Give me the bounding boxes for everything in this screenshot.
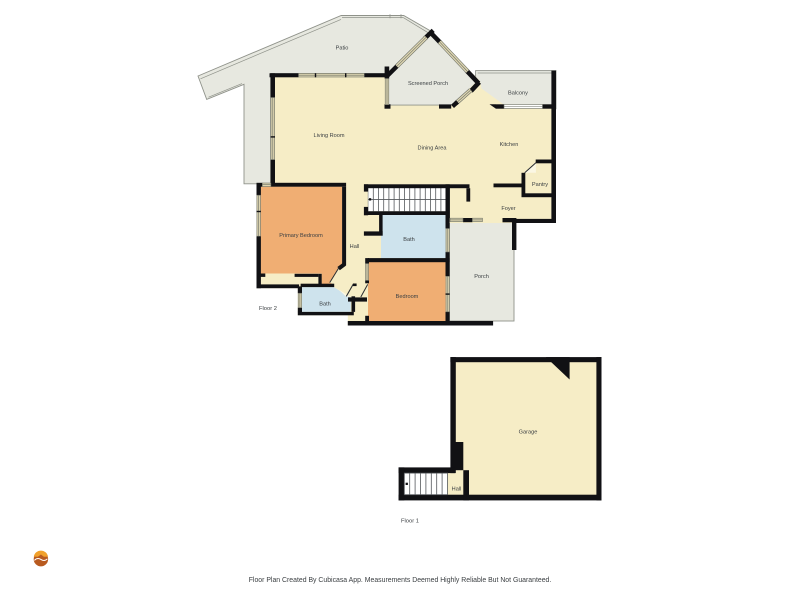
svg-text:Floor Plan Created By Cubicasa: Floor Plan Created By Cubicasa App. Meas… — [249, 577, 552, 584]
svg-text:Porch: Porch — [474, 274, 489, 280]
svg-text:Dining Area: Dining Area — [418, 146, 448, 152]
svg-text:Kitchen: Kitchen — [500, 142, 519, 148]
svg-text:Floor 2: Floor 2 — [259, 306, 277, 312]
svg-text:Foyer: Foyer — [501, 206, 515, 212]
svg-text:Primary Bedroom: Primary Bedroom — [279, 233, 323, 239]
svg-text:Bath: Bath — [403, 237, 415, 243]
svg-text:Bedroom: Bedroom — [396, 294, 419, 300]
svg-text:Floor 1: Floor 1 — [401, 519, 419, 525]
svg-text:Hall: Hall — [452, 486, 462, 492]
svg-text:Balcony: Balcony — [508, 91, 528, 97]
svg-text:Patio: Patio — [336, 45, 349, 51]
svg-text:Bath: Bath — [319, 302, 331, 308]
svg-text:Hall: Hall — [350, 244, 360, 250]
svg-text:Living Room: Living Room — [313, 133, 344, 139]
svg-text:Garage: Garage — [519, 430, 538, 436]
svg-text:Screened Porch: Screened Porch — [408, 81, 448, 87]
svg-text:Pantry: Pantry — [532, 182, 548, 188]
